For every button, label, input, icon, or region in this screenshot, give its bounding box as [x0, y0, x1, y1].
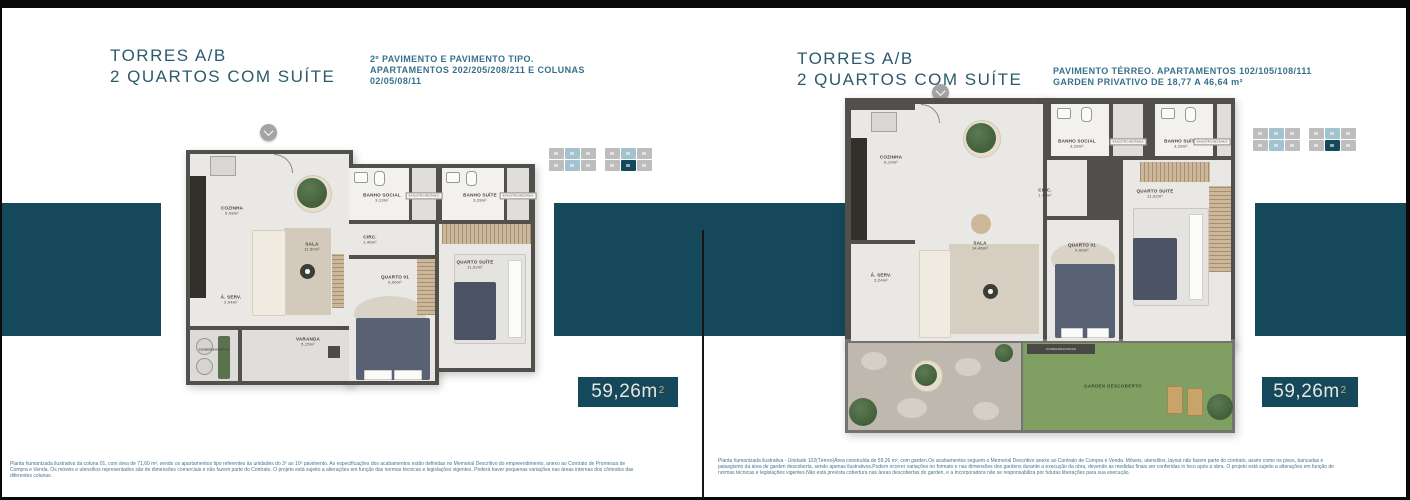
pillow: [1087, 328, 1109, 338]
room-label-circ: CIRC. 1,46m²: [363, 235, 377, 246]
left-floor-plan: COZINHA 5,08m² SALA 11,50m² Á. SERV. 2,0…: [186, 150, 535, 385]
keyplan-unit-cell: [565, 148, 580, 159]
keyplan-unit-cell: [549, 160, 564, 171]
right-section-subtitle: PAVIMENTO TÉRREO. APARTAMENTOS 102/105/1…: [1053, 66, 1312, 88]
keyplan-unit-cell: [1269, 128, 1284, 139]
room-label-cozinha: COZINHA 5,08m²: [221, 206, 243, 217]
keyplan-unit-cell: [637, 160, 652, 171]
coffee-table: [300, 264, 315, 279]
room-label-aserv: Á. SERV. 2,04m²: [221, 295, 242, 306]
room-label-garden: GARDEN DESCOBERTO: [1084, 384, 1142, 389]
keyplan-unit-cell: [1309, 140, 1324, 151]
suite-wardrobe: [442, 224, 531, 244]
sink: [446, 172, 460, 183]
keyplan-unit-cell: [1325, 128, 1340, 139]
room-label-quarto-suite: QUARTO SUITE 11,02m²: [1136, 189, 1173, 200]
patio-stone: [955, 358, 981, 376]
keyplan-unit-cell: [1341, 128, 1356, 139]
pillow: [508, 260, 522, 338]
condenser-unit-2: [196, 358, 213, 375]
exaustao-mecanica-badge: EXAUSTÃO MECÂNICA: [500, 192, 537, 199]
toilet: [1185, 107, 1196, 122]
condensadoras-strip: CONDENSADORAS: [1027, 344, 1095, 354]
suite-bed-throw: [454, 282, 496, 340]
kitchen-counter: [851, 138, 867, 240]
right-building-keyplan: [1253, 128, 1357, 152]
keyplan-unit-cell: [1325, 140, 1340, 151]
quarto01-bed: [1055, 264, 1115, 338]
planter-hedge: [218, 336, 230, 379]
exaustao-mecanica-badge: EXAUSTÃO MECÂNICA: [1110, 138, 1147, 145]
armchair: [971, 214, 991, 234]
right-disclaimer: Planta humanizada ilustrativa - Unidade …: [718, 458, 1394, 476]
room-label-quarto-suite: QUARTO SUÍTE 11,02m²: [456, 260, 493, 271]
toilet: [466, 171, 477, 186]
pillow: [1189, 214, 1203, 300]
room-label-banho-suite: BANHO SUÍTE 3,28m²: [463, 193, 497, 204]
room-label-sala: SALA 11,50m²: [304, 242, 320, 253]
right-title-line1: TORRES A/B: [797, 48, 1022, 69]
garden-shrub: [995, 344, 1013, 362]
left-teal-block: [2, 203, 161, 336]
toilet: [374, 171, 385, 186]
right-teal-block: [1255, 203, 1406, 336]
left-area-badge: 59,26m2: [578, 377, 678, 407]
left-section-title: TORRES A/B 2 QUARTOS COM SUÍTE: [110, 45, 335, 87]
left-subtitle-line3: 02/05/08/11: [370, 76, 585, 87]
sink: [1057, 108, 1071, 119]
suite-wardrobe-side: [1209, 186, 1231, 272]
lounge-chair: [1167, 386, 1183, 414]
keyplan-unit-cell: [581, 148, 596, 159]
room-label-aserv: Á. SERV. 3,24m²: [871, 273, 892, 284]
pillow: [364, 370, 392, 380]
right-area-value: 59,26m: [1273, 381, 1339, 403]
right-floor-plan: CONDENSADORAS COZINHA 6,10m² SALA 14,46m…: [845, 98, 1235, 433]
patio-stone: [861, 352, 887, 370]
right-area-badge: 59,26m2: [1262, 377, 1358, 407]
keyplan-unit-cell: [565, 160, 580, 171]
room-label-banho-social: BANHO SOCIAL 3,13m²: [363, 193, 401, 204]
keyplan-gap: [1301, 128, 1308, 139]
room-label-varanda: VARANDA 5,15m²: [296, 337, 320, 348]
exaustao-mecanica-badge: EXAUSTÃO MECÂNICA: [406, 192, 443, 199]
quarto01-wardrobe: [417, 259, 435, 315]
right-subtitle-line1: PAVIMENTO TÉRREO. APARTAMENTOS 102/105/1…: [1053, 66, 1312, 77]
keyplan-unit-cell: [1341, 140, 1356, 151]
exaustao-mecanica-badge: EXAUSTÃO MECÂNICA: [1194, 138, 1231, 145]
right-subtitle-line2: GARDEN PRIVATIVO DE 18,77 A 46,64 m²: [1053, 77, 1312, 88]
suite-bed-throw: [1133, 238, 1177, 300]
kitchen-counter: [190, 176, 206, 298]
dining-centerpiece-plant: [297, 178, 327, 208]
left-collapse-chevron-button[interactable]: [260, 124, 277, 141]
lounge-chair: [1187, 388, 1203, 416]
pillow: [1061, 328, 1083, 338]
keyplan-gap: [597, 148, 604, 159]
keyplan-unit-cell: [637, 148, 652, 159]
sink: [354, 172, 368, 183]
room-condensadoras: [190, 330, 238, 381]
keyplan-unit-cell: [621, 148, 636, 159]
middle-teal-block: [554, 203, 845, 336]
room-circ: [1047, 160, 1087, 216]
keyplan-gap: [1301, 140, 1308, 151]
right-title-line2: 2 QUARTOS COM SUÍTE: [797, 69, 1022, 90]
room-label-sala: SALA 14,46m²: [972, 241, 988, 252]
left-disclaimer: Planta humanizada ilustrativa da coluna …: [10, 461, 686, 479]
keyplan-unit-cell: [1285, 140, 1300, 151]
room-label-quarto01: QUARTO 01 9,06m²: [1068, 243, 1096, 254]
room-label-cozinha: COZINHA 6,10m²: [880, 155, 902, 166]
keyplan-unit-cell: [1253, 128, 1268, 139]
keyplan-unit-cell: [1285, 128, 1300, 139]
patio-stone: [973, 402, 999, 420]
chevron-down-icon: [264, 126, 274, 136]
room-circ: [349, 224, 435, 255]
keyplan-gap: [597, 160, 604, 171]
garden-table-plant: [915, 364, 937, 386]
keyplan-unit-cell: [581, 160, 596, 171]
left-title-line1: TORRES A/B: [110, 45, 335, 66]
sink: [1161, 108, 1175, 119]
room-label-condensadoras: CONDENSADORAS: [199, 347, 230, 352]
keyplan-unit-cell: [605, 148, 620, 159]
left-subtitle-line1: 2º PAVIMENTO E PAVIMENTO TIPO.: [370, 54, 585, 65]
page-canvas: TORRES A/B 2 QUARTOS COM SUÍTE 2º PAVIME…: [2, 8, 1406, 497]
left-area-value: 59,26m: [591, 381, 657, 403]
room-label-banho-social: BANHO SOCIAL 3,28m²: [1058, 139, 1096, 150]
coffee-table: [983, 284, 998, 299]
left-title-line2: 2 QUARTOS COM SUÍTE: [110, 66, 335, 87]
fridge: [871, 112, 897, 132]
room-label-quarto01: QUARTO 01 9,06m²: [381, 275, 409, 286]
keyplan-unit-cell: [1269, 140, 1284, 151]
left-section-subtitle: 2º PAVIMENTO E PAVIMENTO TIPO. APARTAMEN…: [370, 54, 585, 87]
tv-sideboard: [332, 254, 344, 308]
patio-stone: [897, 398, 927, 418]
keyplan-unit-cell: [1253, 140, 1268, 151]
left-subtitle-line2: APARTAMENTOS 202/205/208/211 E COLUNAS: [370, 65, 585, 76]
keyplan-unit-cell: [621, 160, 636, 171]
keyplan-unit-cell: [1309, 128, 1324, 139]
room-label-circ: CIRC. 1,46m²: [1038, 188, 1052, 199]
right-section-title: TORRES A/B 2 QUARTOS COM SUÍTE: [797, 48, 1022, 90]
chevron-down-icon: [936, 86, 946, 96]
pillow: [394, 370, 422, 380]
shaft-banho-social: [1113, 104, 1143, 156]
keyplan-unit-cell: [549, 148, 564, 159]
suite-wardrobe-top: [1140, 162, 1210, 182]
sofa: [252, 230, 286, 316]
dining-centerpiece-plant: [966, 123, 996, 153]
keyplan-unit-cell: [605, 160, 620, 171]
room-aserv: [851, 244, 915, 341]
section-divider: [702, 230, 704, 497]
sofa: [919, 250, 951, 338]
shaft-banho-suite: [1217, 104, 1231, 156]
fridge: [210, 156, 236, 176]
varanda-table: [328, 346, 340, 358]
garden-tree: [849, 398, 877, 426]
toilet: [1081, 107, 1092, 122]
garden-tree: [1207, 394, 1233, 420]
left-building-keyplan: [549, 148, 653, 172]
